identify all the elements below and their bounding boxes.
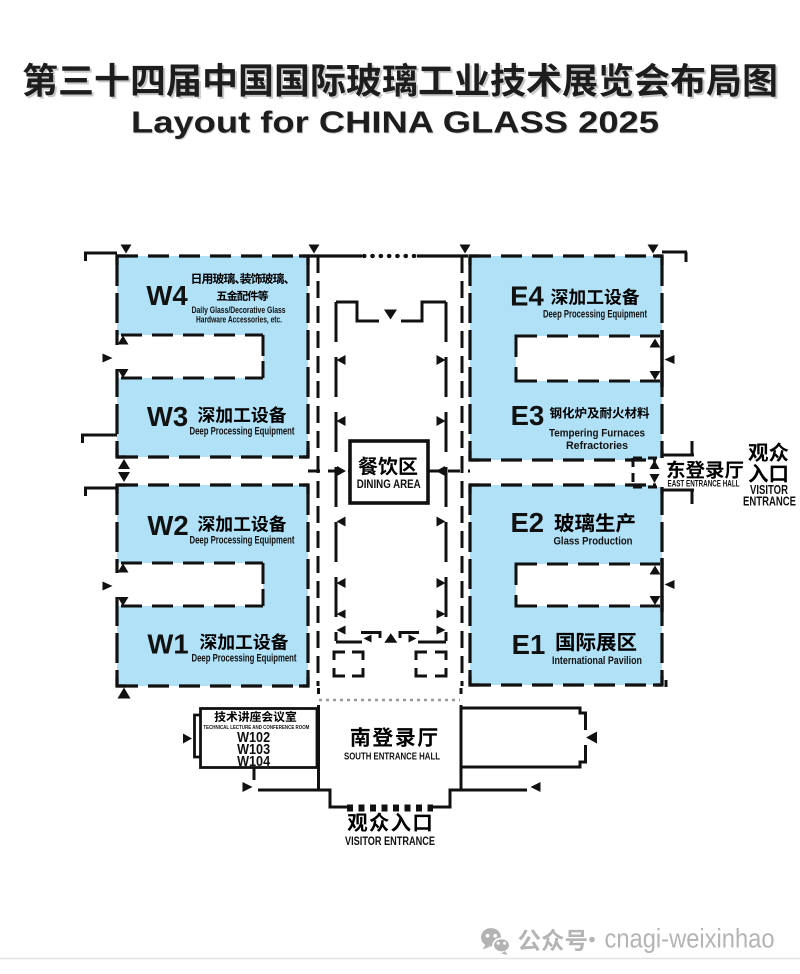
svg-text:E2: E2 (510, 507, 544, 538)
svg-text:W2: W2 (147, 510, 188, 541)
svg-text:E1: E1 (512, 629, 546, 660)
svg-text:Deep Processing Equipment: Deep Processing Equipment (190, 535, 295, 547)
svg-text:VISITOR ENTRANCE: VISITOR ENTRANCE (345, 834, 435, 848)
svg-text:E4: E4 (510, 281, 544, 312)
svg-text:cnagi-weixinhao: cnagi-weixinhao (605, 924, 775, 954)
svg-text:W1: W1 (147, 629, 188, 660)
svg-text:Deep Processing Equipment: Deep Processing Equipment (192, 653, 297, 665)
svg-text:International Pavilion: International Pavilion (552, 655, 642, 667)
svg-text:EAST ENTRANCE HALL: EAST ENTRANCE HALL (668, 479, 740, 489)
svg-text:Glass Production: Glass Production (554, 536, 633, 548)
svg-text:Tempering Furnaces: Tempering Furnaces (549, 428, 645, 440)
svg-text:Refractories: Refractories (566, 440, 628, 452)
svg-text:SOUTH ENTRANCE HALL: SOUTH ENTRANCE HALL (344, 751, 440, 763)
svg-text:Deep Processing Equipment: Deep Processing Equipment (543, 309, 647, 321)
svg-text:Hardware Accessories, etc.: Hardware Accessories, etc. (196, 315, 282, 326)
svg-text:Layout for CHINA GLASS 2025: Layout for CHINA GLASS 2025 (131, 105, 659, 140)
svg-text:Deep Processing Equipment: Deep Processing Equipment (190, 426, 295, 438)
svg-text:W104: W104 (237, 753, 271, 770)
svg-text:ENTRANCE: ENTRANCE (743, 495, 796, 509)
svg-text:W4: W4 (146, 280, 188, 311)
svg-text:DINING AREA: DINING AREA (357, 477, 421, 491)
svg-text:E3: E3 (511, 400, 545, 431)
svg-text:W3: W3 (147, 401, 188, 432)
